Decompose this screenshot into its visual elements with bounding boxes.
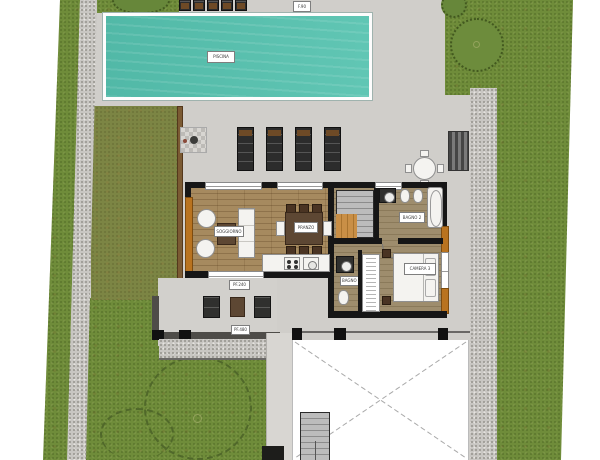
patio-tag-bottom: PF.480 <box>231 325 250 335</box>
burner-icon <box>294 260 298 264</box>
sun-lounger-icon <box>266 127 283 171</box>
sun-lounger-icon <box>207 0 219 11</box>
bedroom-label: CAMERA 3 <box>404 263 436 275</box>
planter-tree-dot <box>190 136 198 144</box>
doormat <box>262 446 284 460</box>
lounger-pad <box>297 130 310 136</box>
sink-basin-icon <box>308 261 317 270</box>
window-living-top-right <box>277 182 323 190</box>
sun-lounger-icon <box>235 0 247 11</box>
burner-icon <box>287 265 291 269</box>
staircase-winders <box>336 214 357 238</box>
sun-lounger-icon <box>324 127 341 171</box>
wall-horizontal-mid <box>398 238 443 244</box>
nightstand <box>382 296 391 305</box>
sun-lounger-icon <box>237 127 254 171</box>
stair-center-line <box>315 441 316 460</box>
outdoor-round-table <box>413 157 436 180</box>
patio-table <box>230 297 245 317</box>
bath-counter <box>379 188 396 203</box>
lounger-pad <box>239 130 252 136</box>
exterior-stair-slats <box>448 131 469 171</box>
washbasin-icon <box>384 192 395 203</box>
window-living-top-left <box>205 182 262 190</box>
nightstand <box>382 249 391 258</box>
lounger-pad <box>326 130 339 136</box>
cooktop <box>284 257 300 270</box>
patio-wall-bottom <box>152 332 280 339</box>
kitchen-sink <box>303 257 319 270</box>
planter-red-dot <box>183 139 187 143</box>
pool-label: PISCINA <box>207 51 235 63</box>
garage-column <box>334 328 346 340</box>
swimming-pool <box>103 13 372 100</box>
lounger-pad <box>223 3 231 9</box>
wall-right-bottom <box>330 311 447 318</box>
patio-armchair <box>203 296 220 318</box>
window-tag-top: F.90 <box>293 1 311 12</box>
outdoor-chair <box>420 150 429 157</box>
armchair-round <box>196 239 215 258</box>
bath-main-label: BAGNO 2 <box>399 212 425 223</box>
burner-icon <box>287 260 291 264</box>
toilet-icon <box>400 189 410 203</box>
wardrobe-closet <box>362 254 380 312</box>
bath-small-label: BAGNO <box>340 276 359 286</box>
toilet-icon <box>338 290 349 305</box>
patio-armchair <box>254 296 271 318</box>
lounger-pad <box>181 3 189 9</box>
site-plan-canvas: PISCINA F.90 SOGGIORNO PRANZO <box>0 0 600 460</box>
lounger-pad <box>195 3 203 9</box>
sliding-door-west <box>185 197 193 273</box>
lawn-olive-courtyard <box>91 106 181 300</box>
dining-label: PRANZO <box>294 222 318 233</box>
double-bed <box>393 253 439 302</box>
sun-lounger-icon <box>221 0 233 11</box>
washbasin-icon <box>341 261 352 272</box>
sun-lounger-icon <box>179 0 191 11</box>
lounger-pad <box>237 3 245 9</box>
bed-pillow <box>425 279 436 297</box>
dining-head-chair <box>323 221 332 236</box>
bathtub <box>427 187 443 228</box>
window-bedroom-east <box>441 252 449 290</box>
patio-gravel-band <box>159 339 269 359</box>
lounger-pad <box>268 130 281 136</box>
bath-small-counter <box>336 256 354 273</box>
patio-tag-top: PF.240 <box>229 280 250 290</box>
sun-lounger-icon <box>295 127 312 171</box>
dining-head-chair <box>276 221 285 236</box>
outdoor-chair <box>437 164 444 173</box>
garage-column <box>292 328 302 340</box>
living-room-label: SOGGIORNO <box>214 226 244 237</box>
wall-horizontal-mid <box>334 238 382 244</box>
burner-icon <box>294 265 298 269</box>
walkway-west-of-garage <box>266 333 294 460</box>
gravel-path-right <box>470 88 497 460</box>
tree-trunk-marker <box>193 414 202 423</box>
sun-lounger-icon <box>193 0 205 11</box>
exterior-staircase-garage <box>300 412 330 460</box>
outdoor-chair <box>405 164 412 173</box>
garage-column <box>438 328 448 340</box>
bed-blanket-line <box>423 254 424 301</box>
patio-gravel-edge <box>159 358 269 360</box>
lawn-left-of-patio <box>84 298 158 350</box>
bidet-icon <box>413 189 423 203</box>
lounger-pad <box>209 3 217 9</box>
bathtub-basin <box>430 190 442 227</box>
tree-canopy-small <box>100 408 174 460</box>
bush-trunk-marker <box>473 41 480 48</box>
